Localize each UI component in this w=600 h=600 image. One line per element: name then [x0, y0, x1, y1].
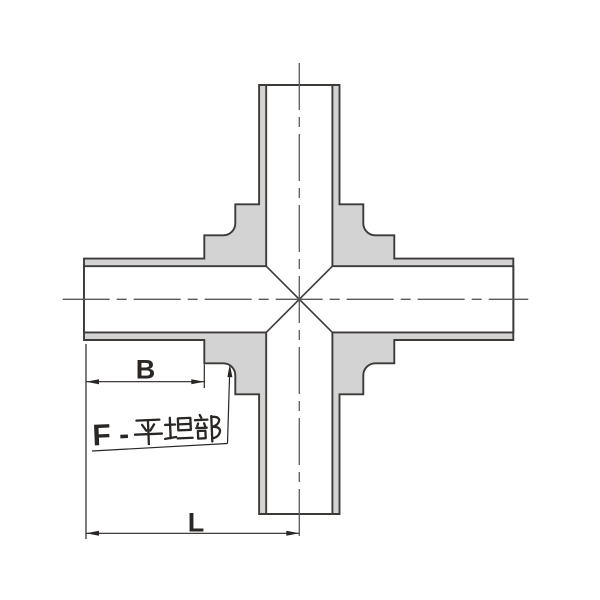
b-dimension-label: B [136, 355, 156, 385]
flat-note-prefix: F - [92, 418, 130, 453]
kanji-hira-glyph [134, 420, 162, 445]
b-arrow-right [191, 379, 204, 384]
drawing-page: F - 平坦部 B L [0, 0, 600, 600]
l-arrow-right [286, 531, 299, 536]
flat-area-note: F - [92, 364, 233, 452]
b-arrow-left [86, 379, 99, 384]
l-arrow-left [86, 531, 99, 536]
note-text-group: F - [92, 414, 221, 452]
l-dimension-label: L [188, 508, 205, 538]
leader-line [228, 368, 230, 444]
technical-drawing-canvas: B L F - [0, 0, 600, 600]
kanji-bu-glyph [195, 414, 221, 442]
kanji-tan-glyph [164, 417, 192, 439]
